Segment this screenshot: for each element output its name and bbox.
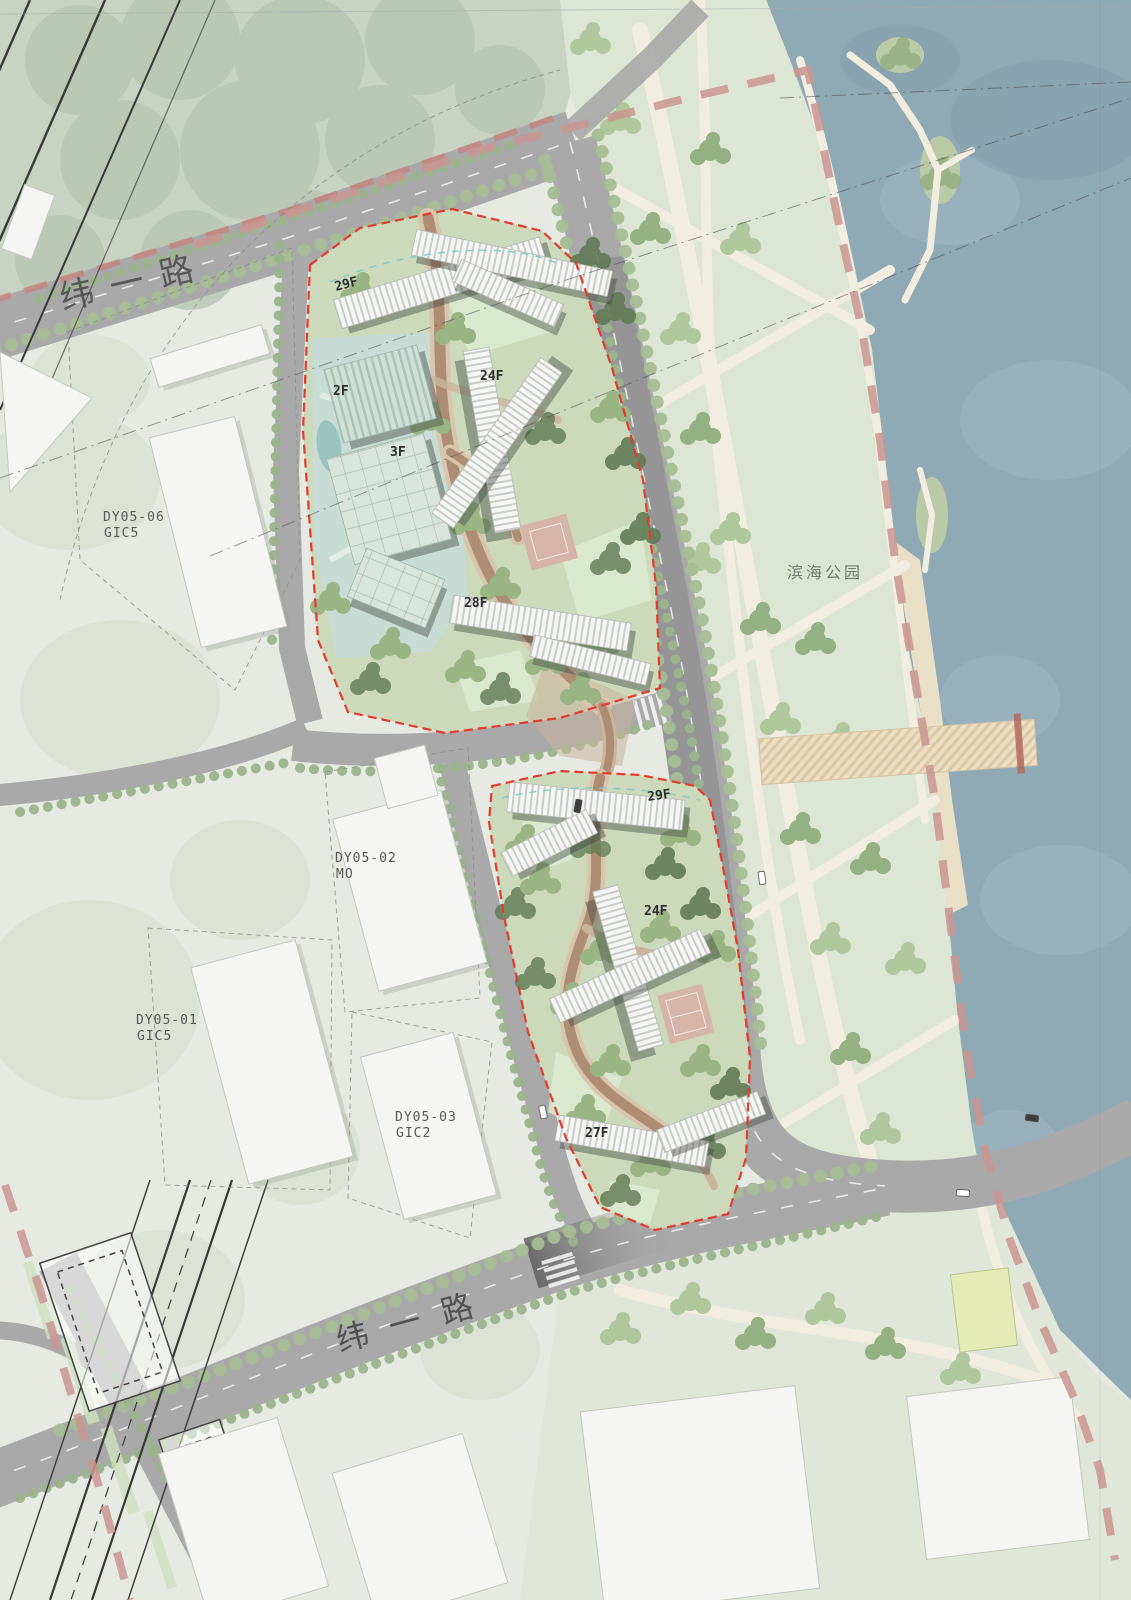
parcel-use: GIC2 bbox=[396, 1126, 431, 1141]
parcel-code: DY05-03 bbox=[395, 1110, 457, 1125]
floor-label: 27F bbox=[585, 1126, 609, 1141]
parcel-north: 29F 2F 3F 24F 28F bbox=[303, 209, 661, 772]
parcel-code: DY05-01 bbox=[136, 1013, 198, 1028]
parcel-use: MO bbox=[336, 867, 354, 882]
park-label: 滨海公园 bbox=[787, 563, 863, 582]
floor-label: 24F bbox=[480, 369, 504, 384]
master-plan-map: 29F 2F 3F 24F 28F bbox=[0, 0, 1131, 1600]
parcel-code: DY05-06 bbox=[103, 510, 165, 525]
floor-label: 24F bbox=[644, 904, 668, 919]
parcel-code: DY05-02 bbox=[335, 851, 397, 866]
floor-label: 28F bbox=[464, 596, 488, 611]
parcel-use: GIC5 bbox=[137, 1029, 172, 1044]
floor-label: 3F bbox=[390, 445, 406, 460]
site-plan-canvas: 29F 2F 3F 24F 28F bbox=[0, 0, 1131, 1600]
floor-label: 2F bbox=[333, 384, 349, 399]
parcel-use: GIC5 bbox=[104, 526, 139, 541]
